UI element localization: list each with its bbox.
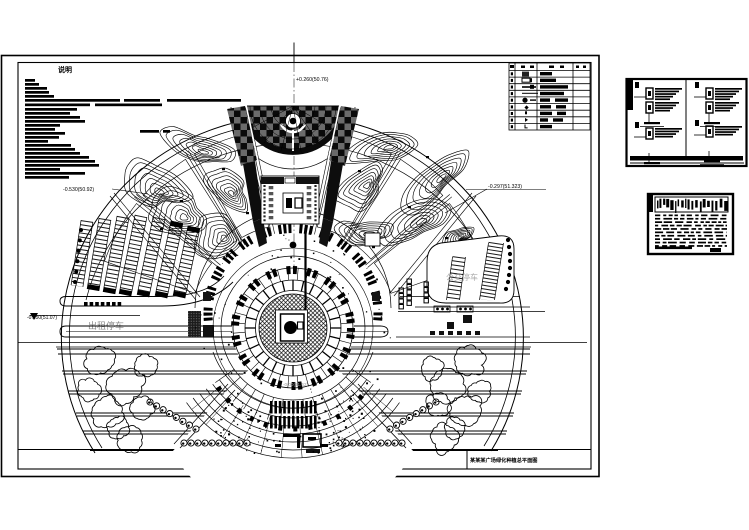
svg-text:某某某广场绿化种植总平面图: 某某某广场绿化种植总平面图 <box>470 456 537 464</box>
svg-text:出租停车: 出租停车 <box>88 320 124 331</box>
svg-text:-0.297(51.323): -0.297(51.323) <box>488 184 522 190</box>
svg-text:-0.550(51.07): -0.550(51.07) <box>27 315 57 321</box>
svg-text:公交停车: 公交停车 <box>446 272 478 282</box>
svg-text:-0.00(51.62): -0.00(51.62) <box>283 382 308 387</box>
svg-text:说明: 说明 <box>58 65 72 74</box>
svg-text:-0.530(50.92): -0.530(50.92) <box>63 187 94 193</box>
svg-text:+0.260(50.76): +0.260(50.76) <box>296 77 329 83</box>
